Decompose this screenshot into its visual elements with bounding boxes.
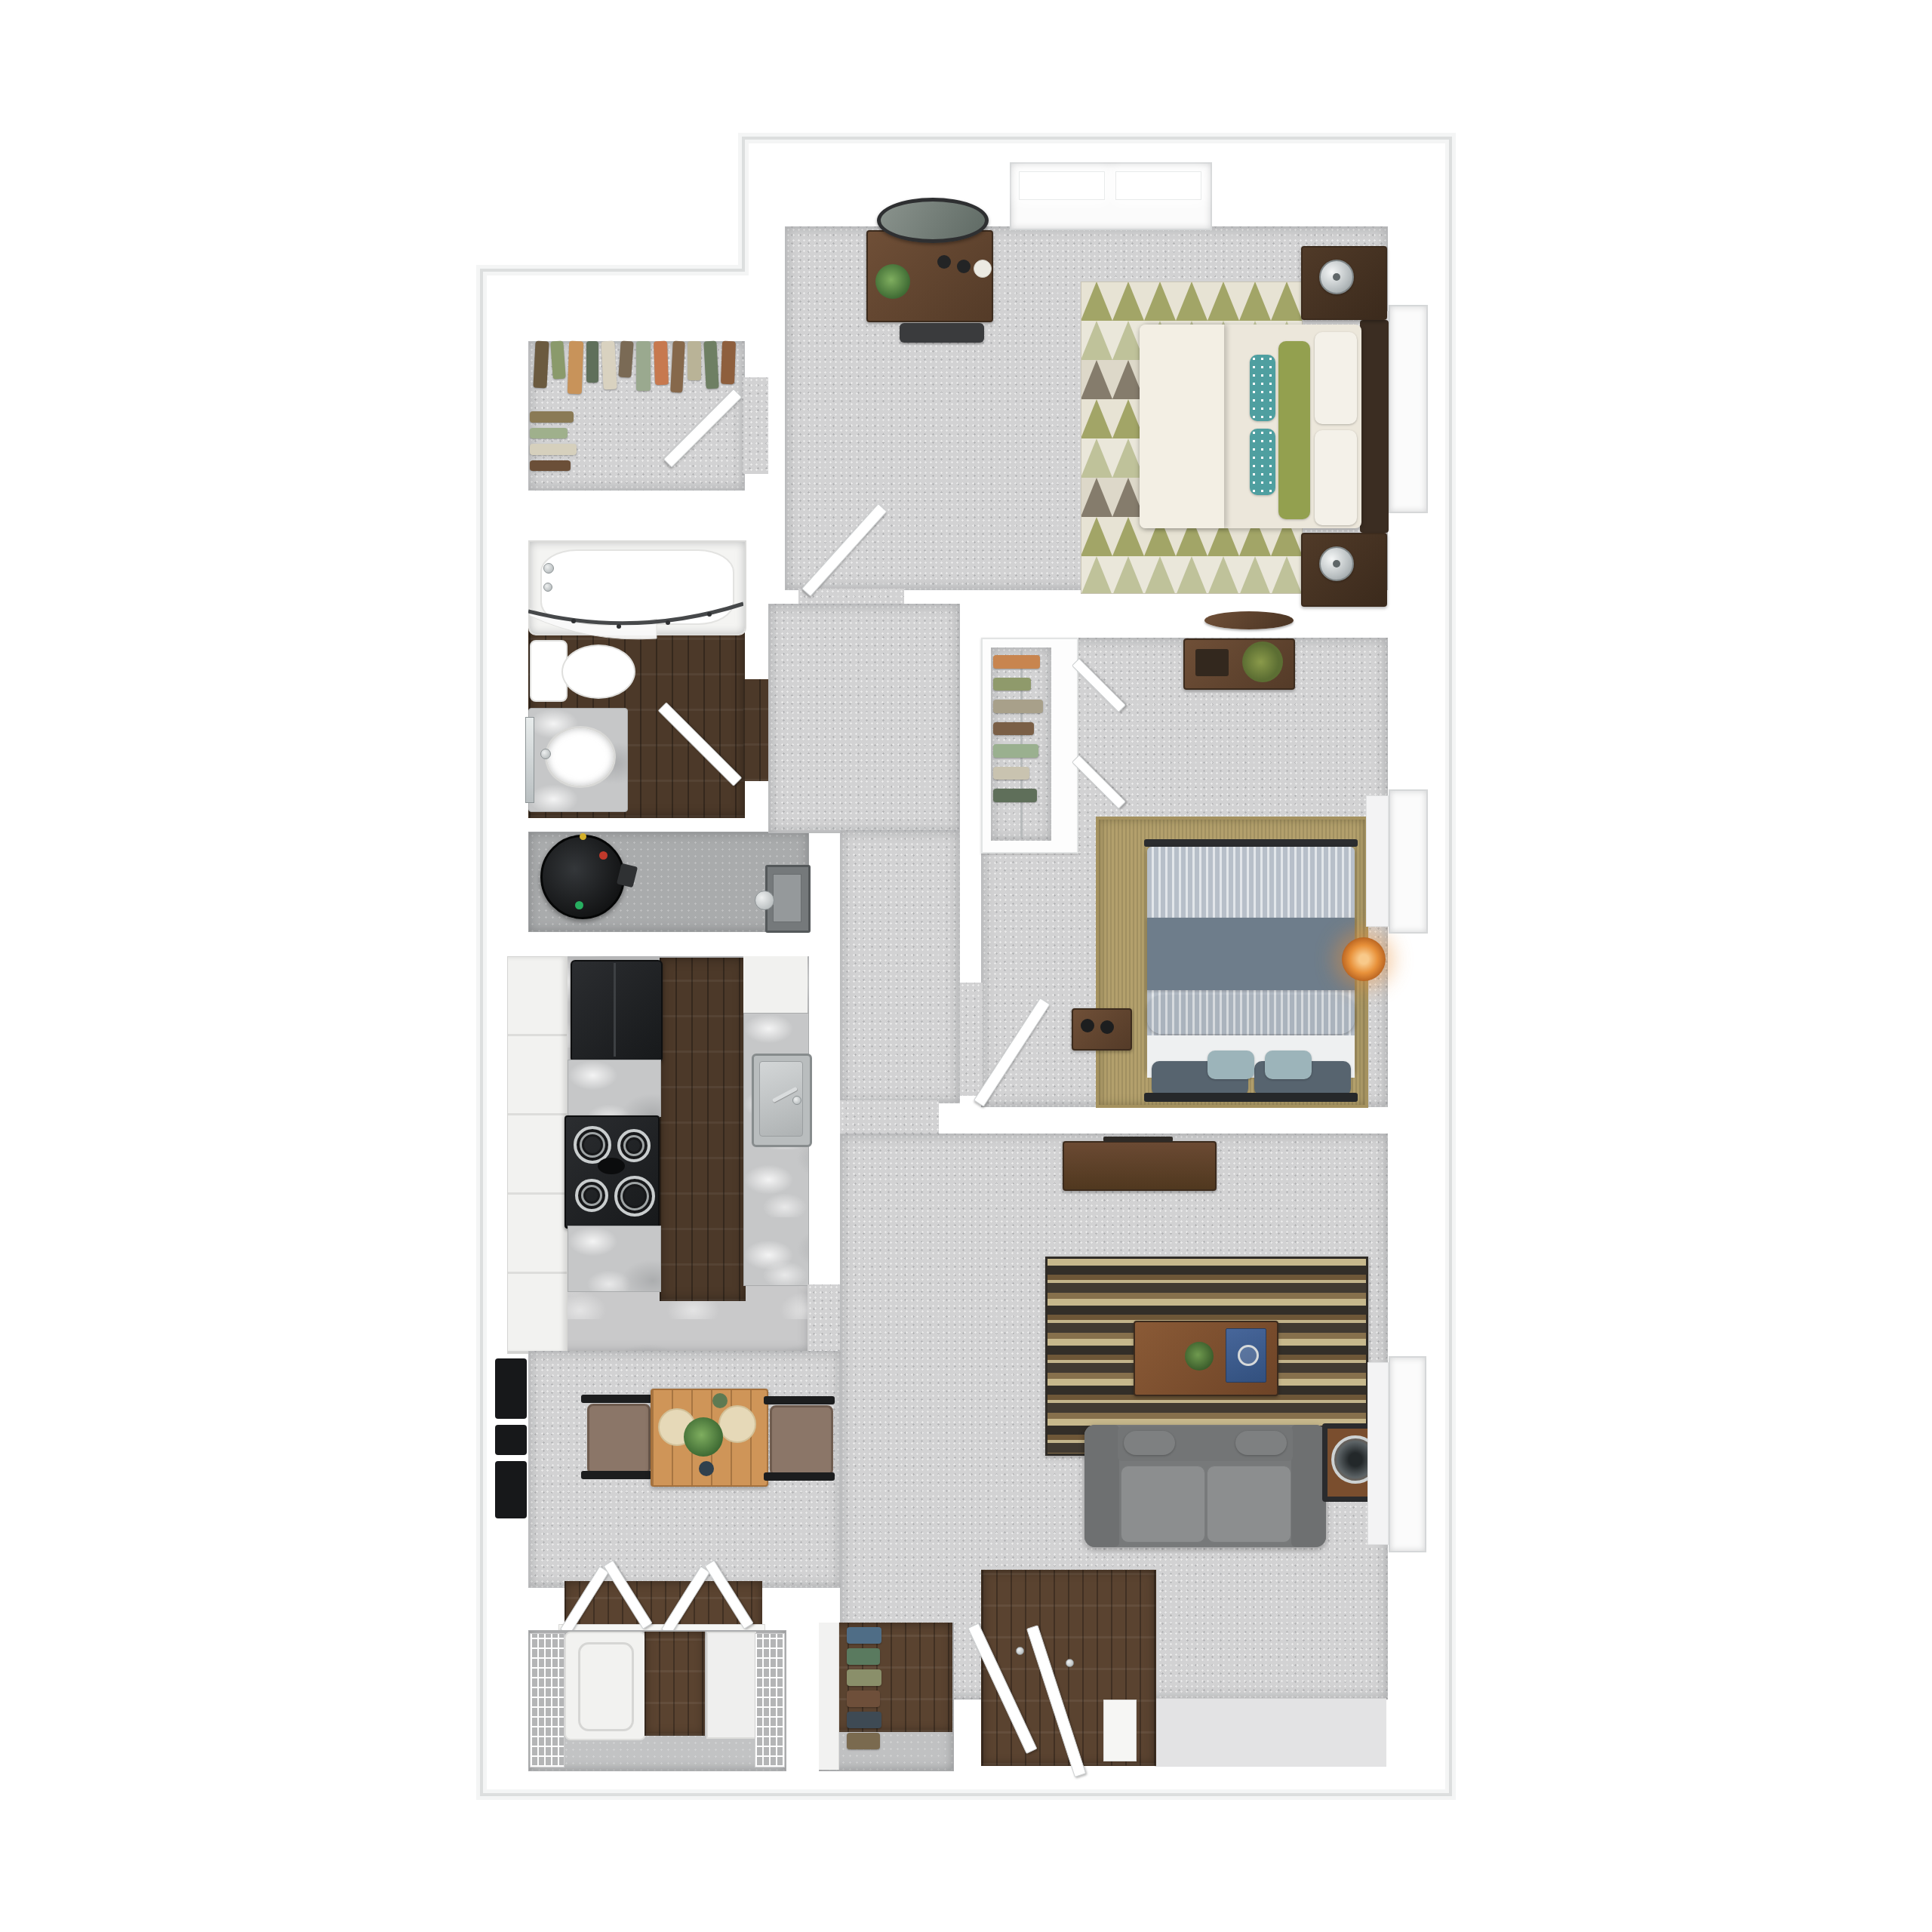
wall-panel-1 [495,1358,527,1419]
sofa-bolster-right [1235,1431,1287,1455]
kitchen-counter-upper [568,1060,661,1117]
master-pillow-green [1278,341,1310,519]
master-top-window-pane-right [1115,171,1201,200]
bedroom-2-closet-clothes [993,655,1048,836]
table-centerpiece-plant [684,1417,723,1457]
master-pillow-white-1 [1315,332,1357,424]
master-pillow-white-2 [1315,430,1357,525]
refrigerator [571,960,663,1063]
wall-panel-3 [495,1461,527,1518]
vanity-faucet [540,749,551,759]
kitchen-cabinets-left [507,956,568,1354]
floor-plan-image: { "scene": { "kind": "3D top-down apartm… [0,0,1932,1932]
nightstand-speaker-2 [1100,1020,1114,1034]
master-side-window [1389,305,1428,513]
bedroom-2-door-opening [960,983,983,1096]
kitchen-wood-floor [660,958,746,1301]
dresser-plant [875,264,910,299]
entry-threshold [1103,1700,1137,1761]
water-heater-red-valve [599,851,608,860]
tub-faucet [543,563,554,574]
desk-tray [1195,649,1229,676]
nightstand-speaker-1 [1081,1019,1094,1032]
dining-chair-right [764,1396,835,1481]
hallway-outlet [840,1100,939,1135]
bedroom-2-blanket-band [1147,918,1355,990]
nightstand-top-lamp [1319,260,1354,294]
wall-panel-2 [495,1425,527,1455]
electrical-panel-inner [773,874,801,922]
hallway-upper [768,604,960,833]
tub-handle [543,583,552,592]
entry-closet-door-knob [1016,1647,1024,1655]
master-bed-blanket [1140,325,1224,528]
floor-plan [0,0,1932,1932]
bedroom-2-pillow-blue-2 [1265,1051,1312,1079]
closet-clothes-left [530,411,580,488]
burner-2 [617,1129,651,1162]
laundry-wire-shelf-left [530,1633,565,1767]
sofa-seat-right [1207,1466,1291,1543]
dresser-dish [974,260,992,278]
bedroom-2-duvet-roll [1147,995,1355,1034]
bedroom-2-headboard [1144,1093,1358,1102]
desk-plant [1242,641,1283,682]
dresser-speaker-1 [937,255,951,269]
laundry-wood-wall [645,1632,705,1736]
kitchen-counter-lower [568,1226,661,1292]
bedroom-2-orange-lamp [1342,937,1386,981]
water-heater-yellow-cap [580,833,586,840]
master-pillow-teal-1 [1250,355,1275,421]
master-top-window-pane-left [1019,171,1105,200]
hallway-lower [840,830,960,1103]
stove-console [598,1158,625,1174]
dresser-speaker-2 [957,260,971,273]
bedroom-2-footboard [1144,839,1358,847]
walkin-door-opening [743,377,768,474]
living-room-window [1389,1356,1426,1552]
kitchen-east-gap [808,1284,840,1351]
place-setting-right [718,1405,756,1443]
sofa-seat-left [1121,1466,1205,1543]
vanity-sink [545,726,616,788]
bedroom-2-wall-shelf [1204,611,1294,629]
master-bench [900,323,984,343]
bathroom-door-opening [743,679,768,781]
utility-round-fixture [755,891,774,910]
kitchen-faucet-base [792,1096,801,1105]
burner-3 [575,1179,608,1212]
living-room-window-sill [1367,1362,1389,1545]
closet-clothes-top [534,341,741,406]
toilet-bowl [561,645,635,699]
media-console [1063,1141,1217,1191]
table-bowl-green [712,1393,728,1408]
laundry-cabinet [706,1632,756,1739]
bedroom-2-window-sill [1366,795,1389,927]
coffee-table-plant [1185,1342,1214,1371]
dryer-door [578,1642,634,1731]
master-bed-headboard [1360,320,1389,533]
laundry-wire-shelf-right [755,1633,785,1767]
magnifier [1238,1345,1259,1366]
sofa-arm-left [1084,1425,1119,1547]
bedroom-2-pillow-blue-1 [1207,1051,1254,1079]
sofa-bolster-left [1124,1431,1175,1455]
sofa [1084,1425,1326,1547]
kitchen-counter-right-white [743,956,808,1014]
entry-landing-strip [1155,1698,1386,1767]
bedroom-2-window [1389,789,1428,934]
master-pillow-teal-2 [1250,429,1275,495]
front-door-knob [1066,1659,1074,1667]
refrigerator-seam [614,963,616,1057]
sofa-arm-right [1291,1425,1326,1547]
nightstand-bottom-lamp [1319,546,1354,581]
table-bowl-dark [699,1461,714,1476]
console-items [1103,1137,1173,1142]
water-heater-green-valve [575,901,583,909]
master-dresser-mirror [877,198,989,243]
vanity-mirror [525,717,534,803]
burner-4 [614,1176,655,1217]
shoe-closet-partition [819,1623,839,1770]
dining-chair-left [581,1395,652,1479]
shoe-rack [847,1627,884,1764]
